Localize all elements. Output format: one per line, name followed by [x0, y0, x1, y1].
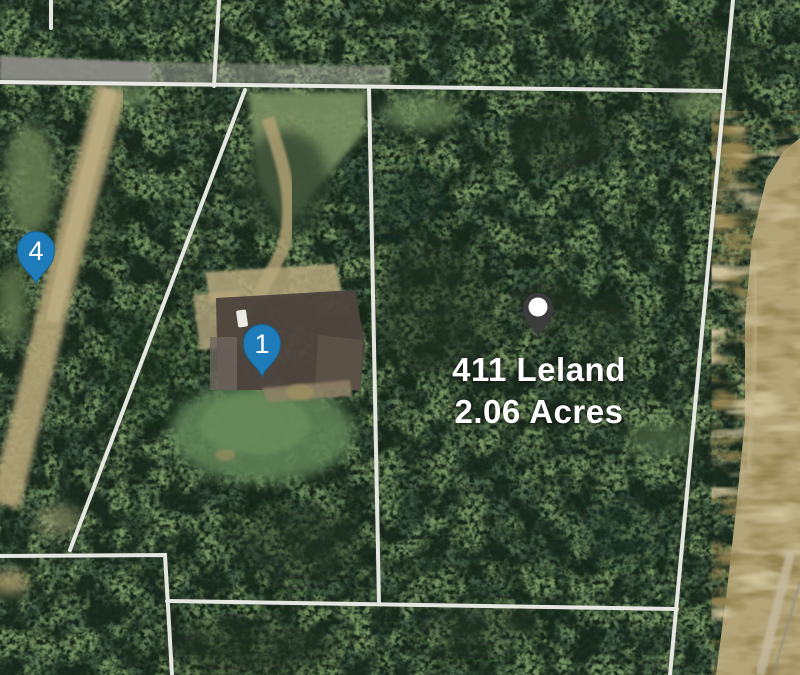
marker-1-number: 1	[254, 329, 269, 359]
map-canvas[interactable]: 4 1 411 Leland 2.06 Acres	[0, 0, 800, 675]
marker-4-number: 4	[28, 236, 43, 266]
satellite-imagery[interactable]: 4 1	[0, 0, 800, 675]
property-pin-dot	[529, 298, 548, 317]
